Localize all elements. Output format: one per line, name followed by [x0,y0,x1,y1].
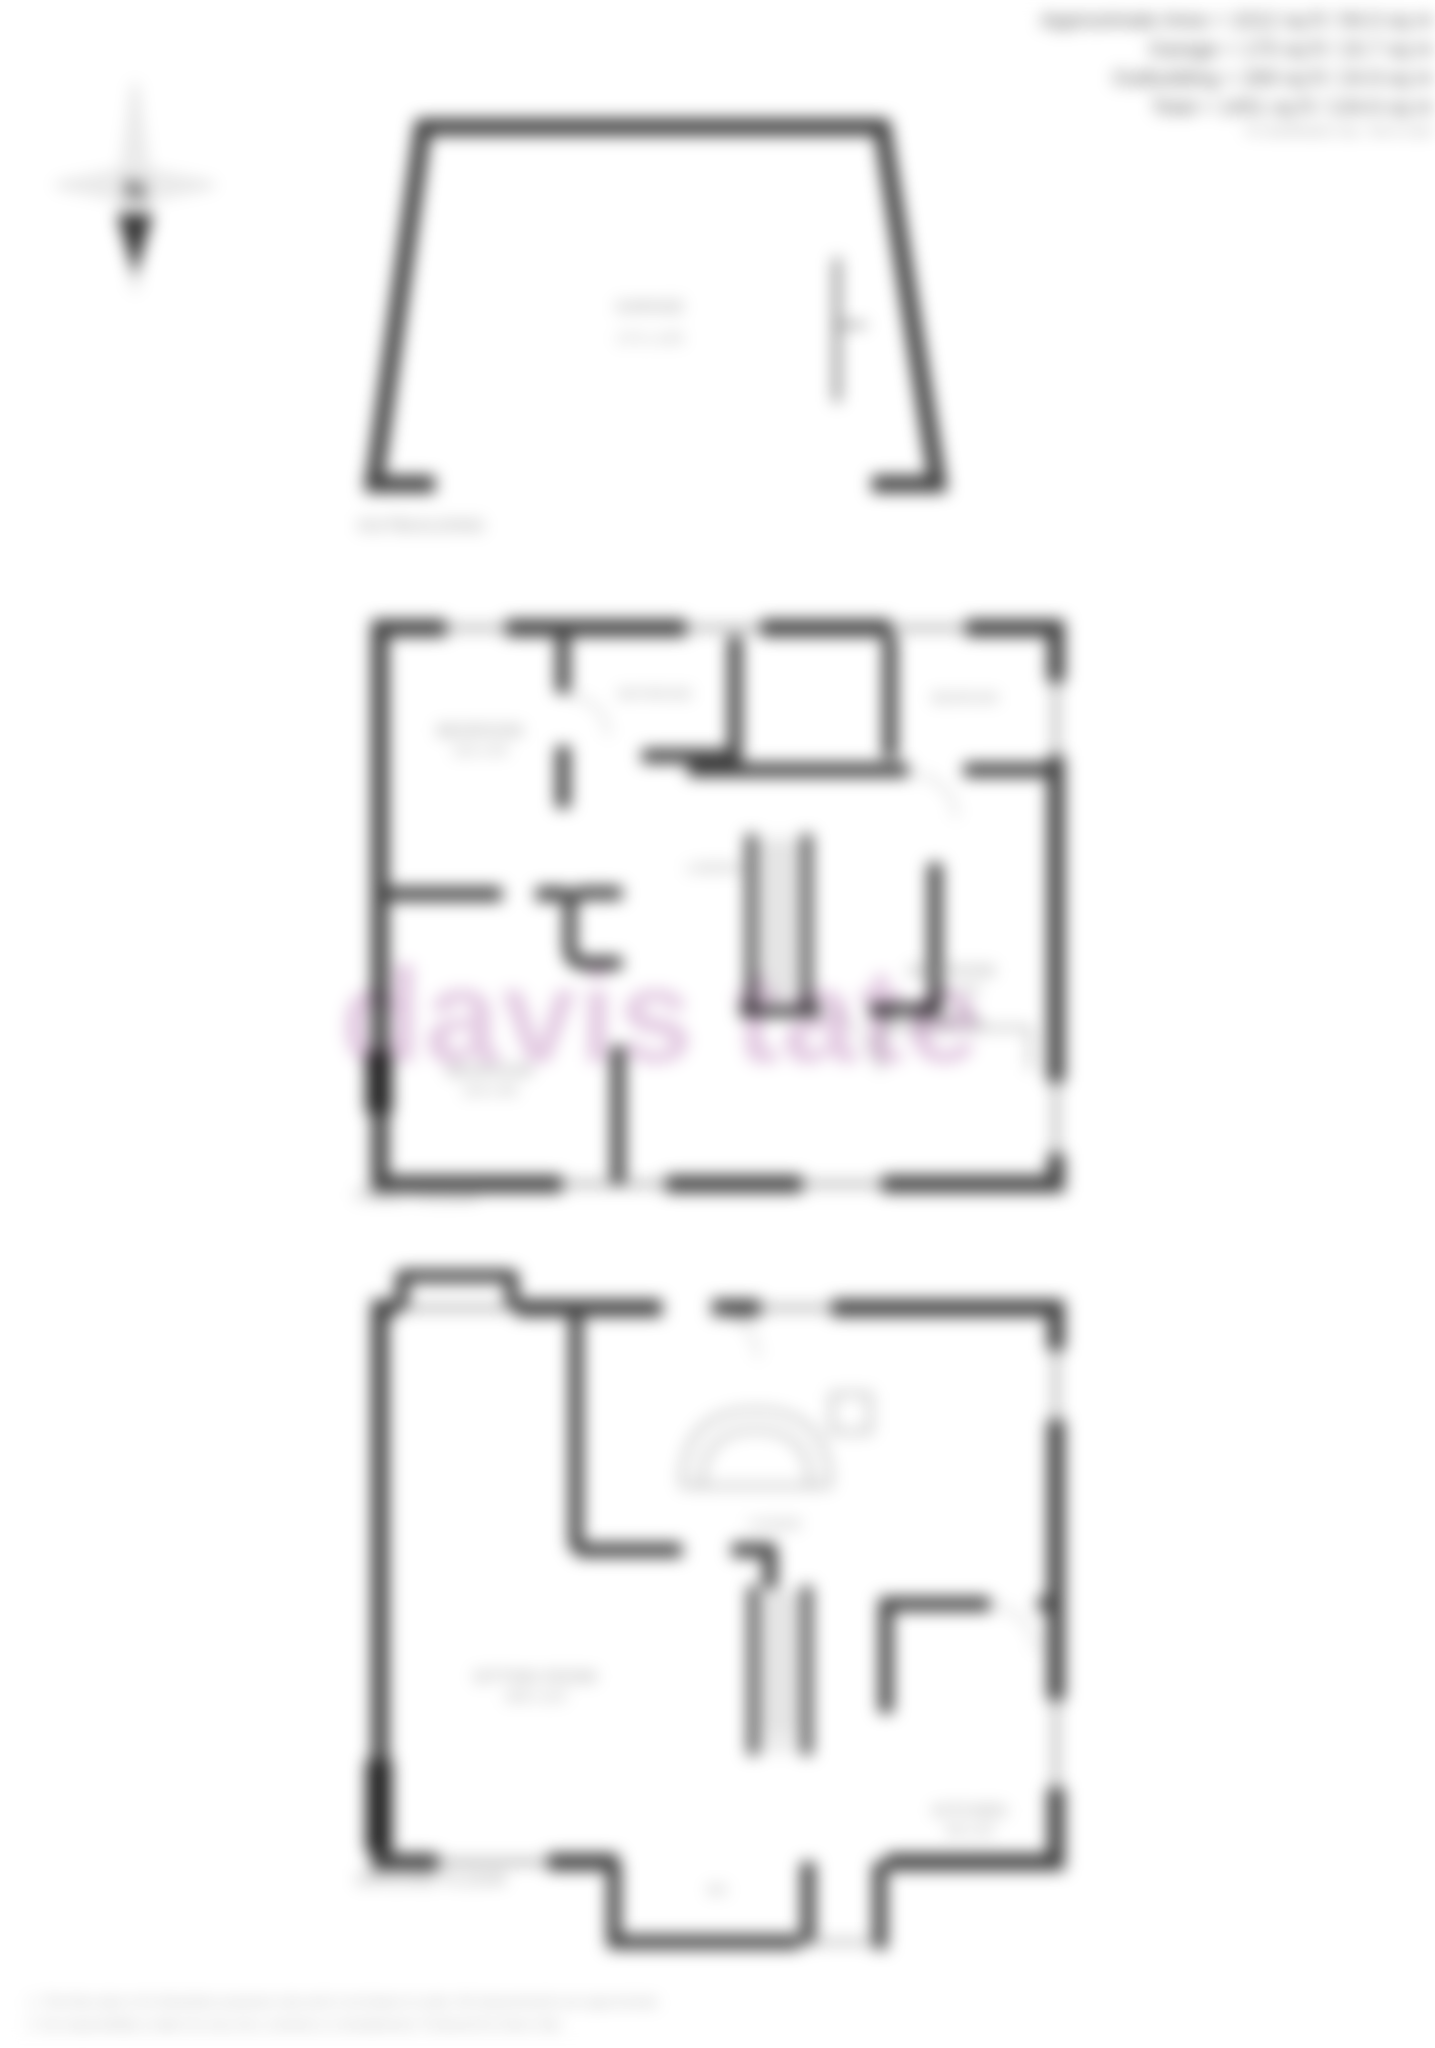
outbuilding-floor-label: OUTBUILDING [358,516,485,536]
room-name: WC [708,1880,729,1900]
compass-north-label: N [124,174,146,207]
wall-segment [881,120,939,492]
room-name: BEDROOM [932,688,998,708]
room-dims: 11'5 x 9'3 [437,742,523,759]
identification-note: For identification only - Not to scale [1040,122,1433,140]
room-dims: 19'8 x 11'5 [473,1688,596,1705]
door-swing [912,774,956,818]
floorplan-page: Approximate Area = 1012 sq ft / 94.0 sq … [0,0,1435,2048]
outbuilding-room-dims: 17'2 x 14'5 [617,330,684,346]
room-name: SITTING ROOM [473,1668,596,1688]
staircase [758,1588,802,1753]
table [832,1394,870,1432]
room-label: KITCHEN 9'8 x 8'2 [933,1802,1007,1839]
room-label: SITTING ROOM 19'8 x 11'5 [473,1668,596,1705]
outbuilding-plan: GARAGE 17'2 x 14'5 [350,100,970,570]
first-floor-label: FIRST FLOOR [356,1186,479,1206]
outbuilding-area-text: Outbuilding = 269 sq ft / 24.9 sq m [1040,64,1433,93]
disclaimer-line-1: 1. This floor plan is for illustrative p… [28,1990,661,2013]
room-name: BEDROOM [437,722,523,742]
room-label: BEDROOM [932,688,998,708]
ground-floor-label: GROUND FLOOR [356,1870,507,1890]
ground-floor-plan [350,1258,1080,1958]
disclaimer: 1. This floor plan is for illustrative p… [28,1990,661,2036]
compass-south-arrow [117,214,153,276]
garage-area-text: Garage = 170 sq ft / 15.7 sq m [1040,35,1433,64]
approximate-area-text: Approximate Area = 1012 sq ft / 94.0 sq … [1040,6,1433,35]
sofa [702,1430,810,1486]
door-swing [990,1606,1036,1652]
door-swing [568,696,608,736]
room-label: WC [708,1880,729,1900]
total-area-text: Total = 1451 sq ft / 134.6 sq m [1040,93,1433,122]
room-name: KITCHEN [933,1802,1007,1822]
room-name: LANDING [687,858,744,878]
chimney-block [366,1760,392,1852]
room-name: LOUNGE [748,1514,802,1534]
room-label: LANDING [687,858,744,878]
room-name: BATHROOM [619,684,691,704]
area-summary: Approximate Area = 1012 sq ft / 94.0 sq … [1040,6,1433,140]
compass-icon: N [55,78,215,308]
room-label: BEDROOM 11'5 x 9'3 [437,722,523,759]
room-label: BATHROOM [619,684,691,704]
agency-watermark: davis tate [340,938,1160,1093]
door-swing [712,1312,758,1358]
sofa [682,1410,830,1486]
wall-segment [373,120,424,492]
room-label: LOUNGE [748,1514,802,1534]
outbuilding-room-name: GARAGE [616,299,684,316]
room-dims: 9'8 x 8'2 [933,1822,1007,1839]
disclaimer-line-2: 2. No responsibility is taken for any er… [28,2013,661,2036]
